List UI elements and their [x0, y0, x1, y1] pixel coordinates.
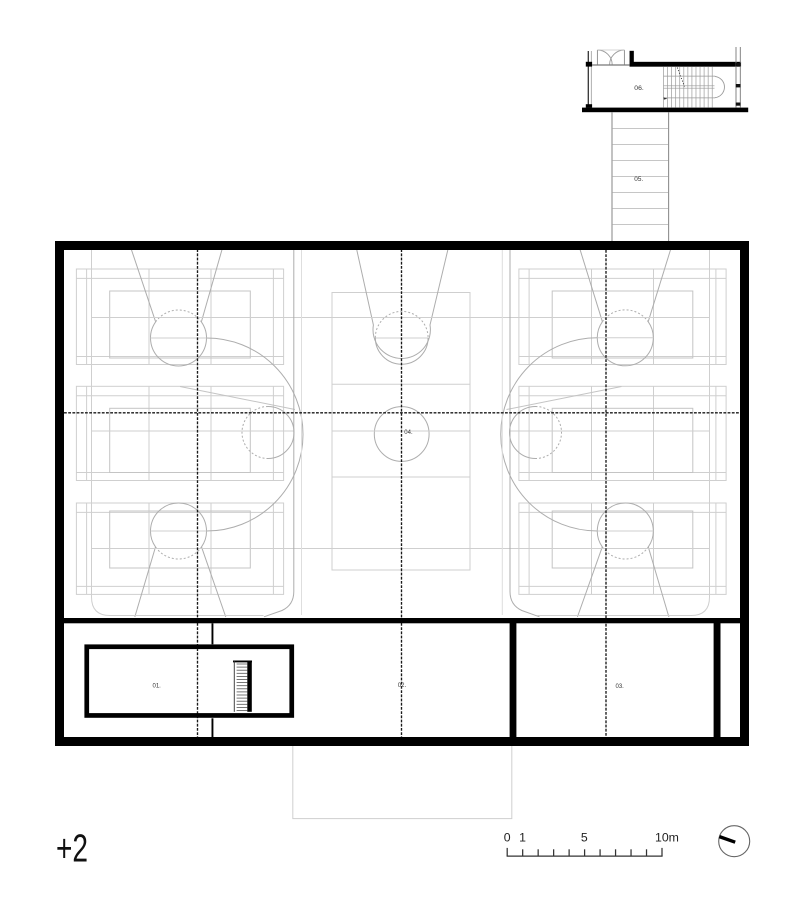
svg-text:5: 5 — [581, 831, 588, 845]
svg-text:1: 1 — [519, 831, 526, 845]
svg-text:+2: +2 — [56, 827, 88, 870]
svg-text:05.: 05. — [634, 176, 643, 183]
svg-text:02.: 02. — [398, 683, 407, 689]
svg-text:01.: 01. — [153, 684, 162, 690]
svg-text:0: 0 — [504, 831, 511, 845]
svg-text:06.: 06. — [634, 85, 644, 92]
svg-text:04.: 04. — [404, 430, 413, 436]
svg-text:10m: 10m — [655, 831, 679, 845]
svg-text:03.: 03. — [616, 684, 625, 690]
